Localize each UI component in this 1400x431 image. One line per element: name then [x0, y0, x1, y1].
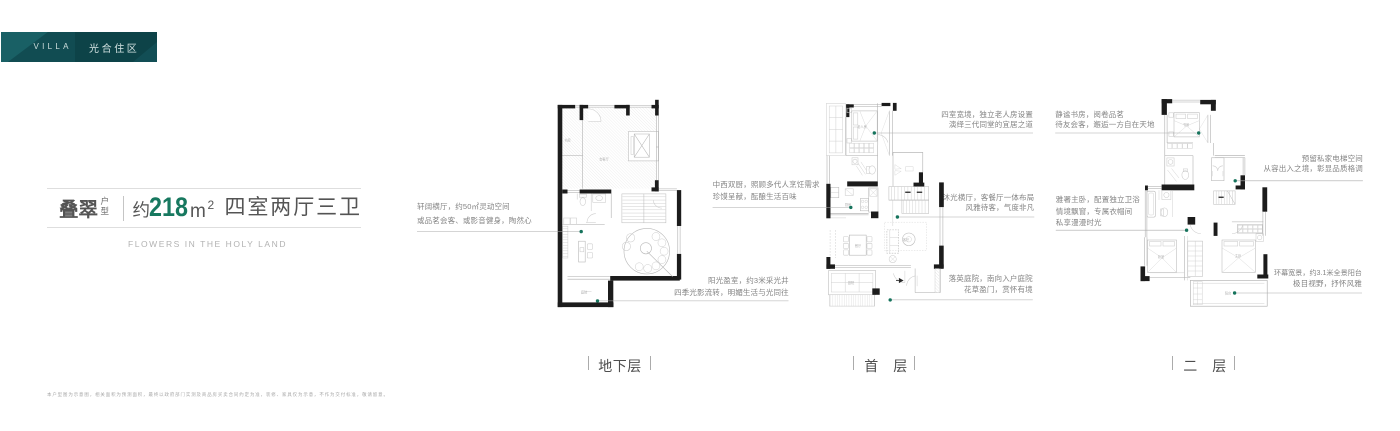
- svg-text:书房: 书房: [1183, 122, 1189, 127]
- svg-text:客厅: 客厅: [903, 237, 910, 242]
- svg-text:书房: 书房: [564, 138, 570, 143]
- svg-text:主卧: 主卧: [1235, 253, 1242, 258]
- svg-text:阳台: 阳台: [1225, 291, 1231, 296]
- svg-text:餐厅: 餐厅: [855, 243, 862, 248]
- svg-text:庭院: 庭院: [848, 280, 855, 285]
- svg-text:庭院: 庭院: [581, 290, 588, 295]
- svg-text:卧室: 卧室: [1158, 254, 1164, 259]
- svg-text:会客厅: 会客厅: [599, 157, 609, 162]
- svg-text:老人房: 老人房: [857, 124, 867, 129]
